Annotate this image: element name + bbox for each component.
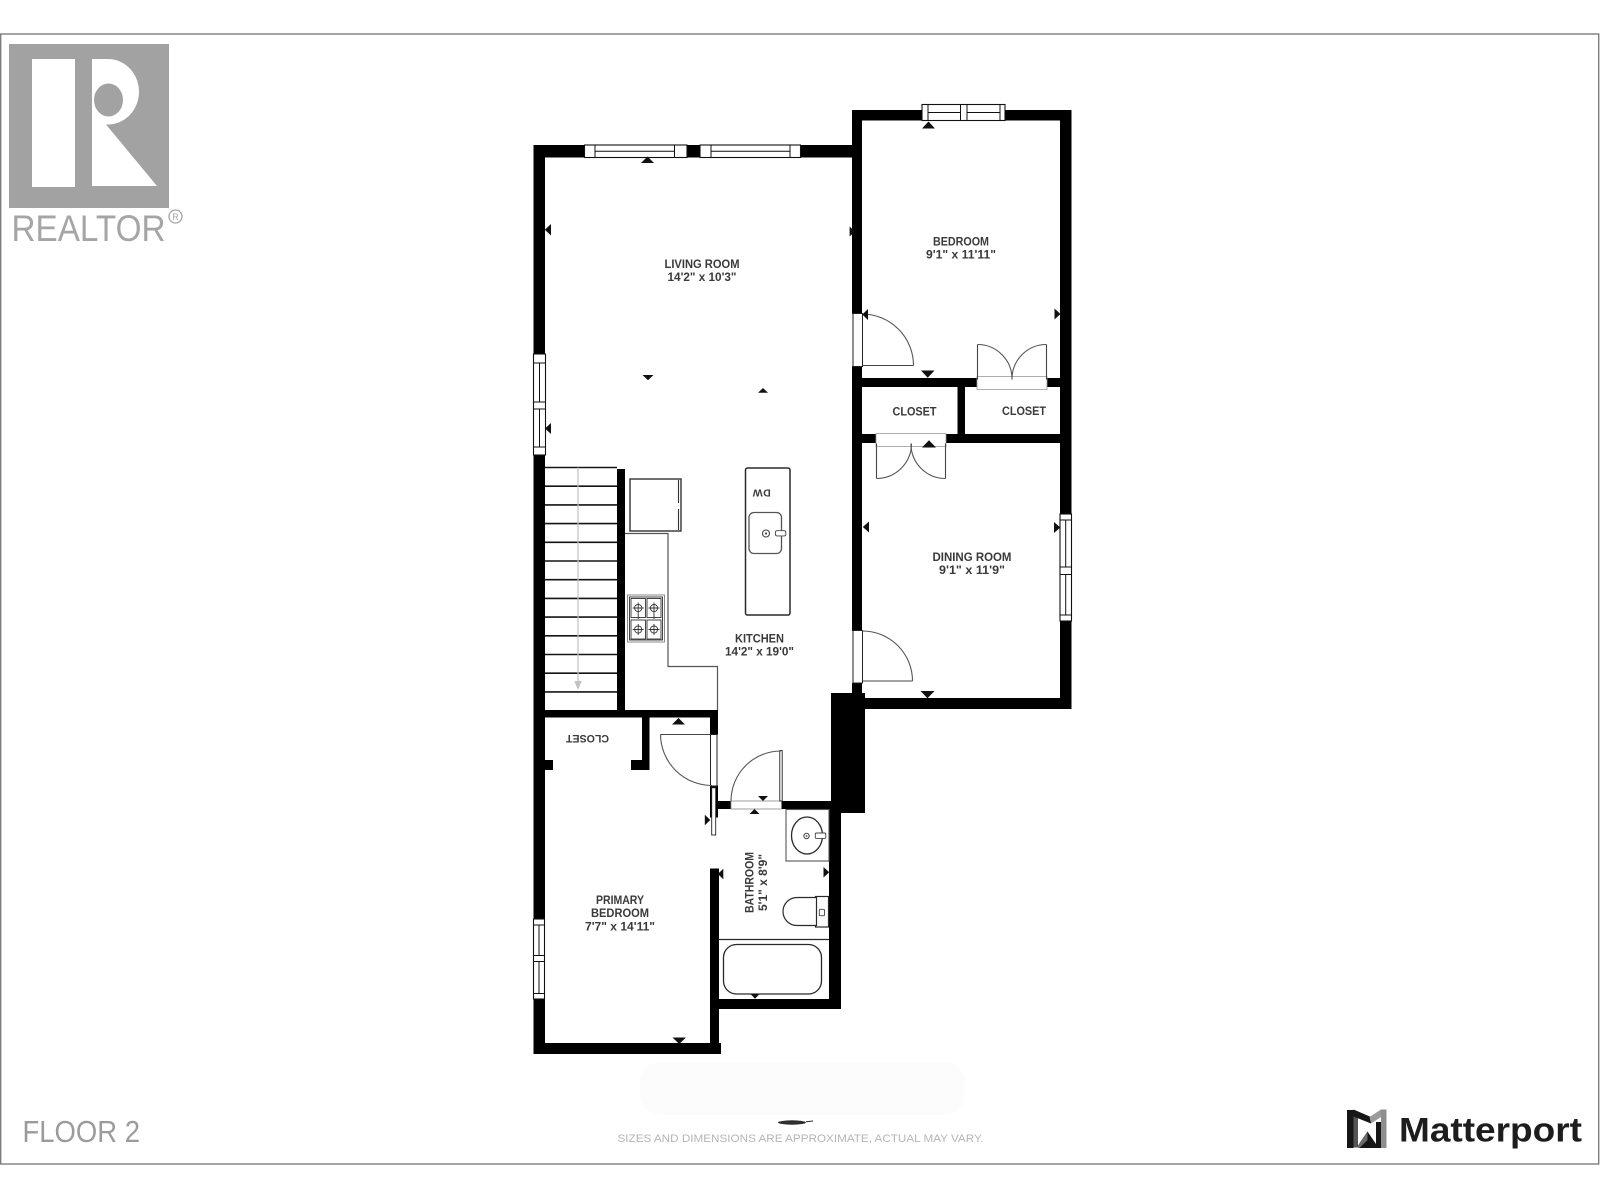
svg-text:14'2" x 19'0": 14'2" x 19'0" — [725, 647, 794, 659]
svg-text:DINING ROOM: DINING ROOM — [933, 552, 1012, 564]
svg-text:LIVING ROOM: LIVING ROOM — [665, 259, 740, 271]
svg-text:14'2" x 10'3": 14'2" x 10'3" — [668, 272, 737, 284]
svg-text:KITCHEN: KITCHEN — [735, 634, 784, 646]
svg-text:BEDROOM: BEDROOM — [591, 908, 649, 920]
svg-text:Matterport: Matterport — [1399, 1112, 1583, 1150]
svg-text:FLOOR 2: FLOOR 2 — [23, 1114, 141, 1149]
svg-text:BATHROOM: BATHROOM — [745, 852, 757, 913]
svg-text:9'1" x 11'9": 9'1" x 11'9" — [939, 565, 1005, 577]
svg-text:7'7" x 14'11": 7'7" x 14'11" — [585, 922, 655, 934]
svg-text:CLOSET: CLOSET — [1002, 406, 1046, 418]
svg-text:BEDROOM: BEDROOM — [933, 237, 989, 249]
svg-text:9'1" x 11'11": 9'1" x 11'11" — [926, 250, 996, 262]
svg-text:5'1" x 8'9": 5'1" x 8'9" — [758, 854, 770, 911]
svg-text:PRIMARY: PRIMARY — [596, 895, 644, 907]
svg-text:SIZES AND DIMENSIONS ARE APPRO: SIZES AND DIMENSIONS ARE APPROXIMATE, AC… — [618, 1133, 984, 1145]
svg-text:R: R — [172, 212, 179, 222]
svg-text:DW: DW — [752, 487, 771, 499]
svg-text:CLOSET: CLOSET — [566, 732, 609, 744]
svg-text:REALTOR: REALTOR — [12, 208, 166, 249]
svg-text:CLOSET: CLOSET — [893, 407, 937, 419]
